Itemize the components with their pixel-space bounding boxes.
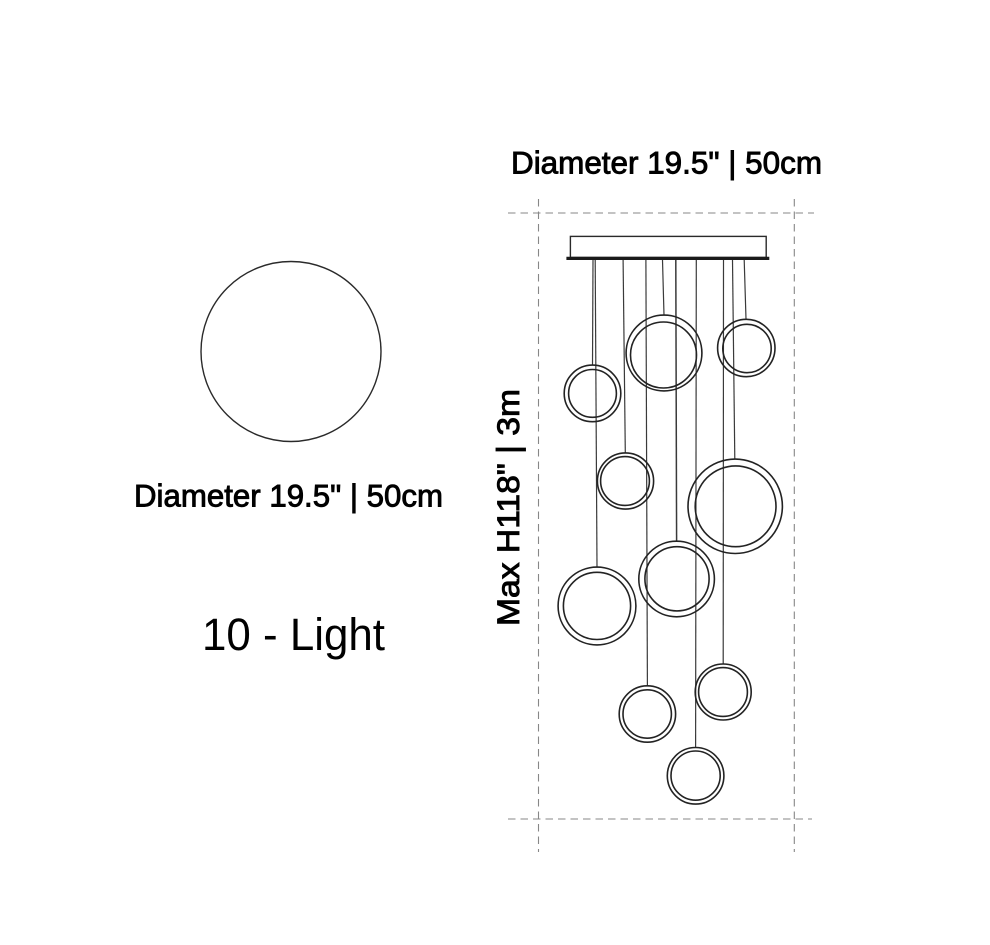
svg-text:Max H118" | 3m: Max H118" | 3m bbox=[490, 389, 526, 626]
svg-text:10 - Light: 10 - Light bbox=[202, 609, 385, 660]
svg-text:Diameter 19.5" | 50cm: Diameter 19.5" | 50cm bbox=[134, 478, 443, 514]
svg-text:Diameter 19.5" | 50cm: Diameter 19.5" | 50cm bbox=[511, 145, 822, 181]
